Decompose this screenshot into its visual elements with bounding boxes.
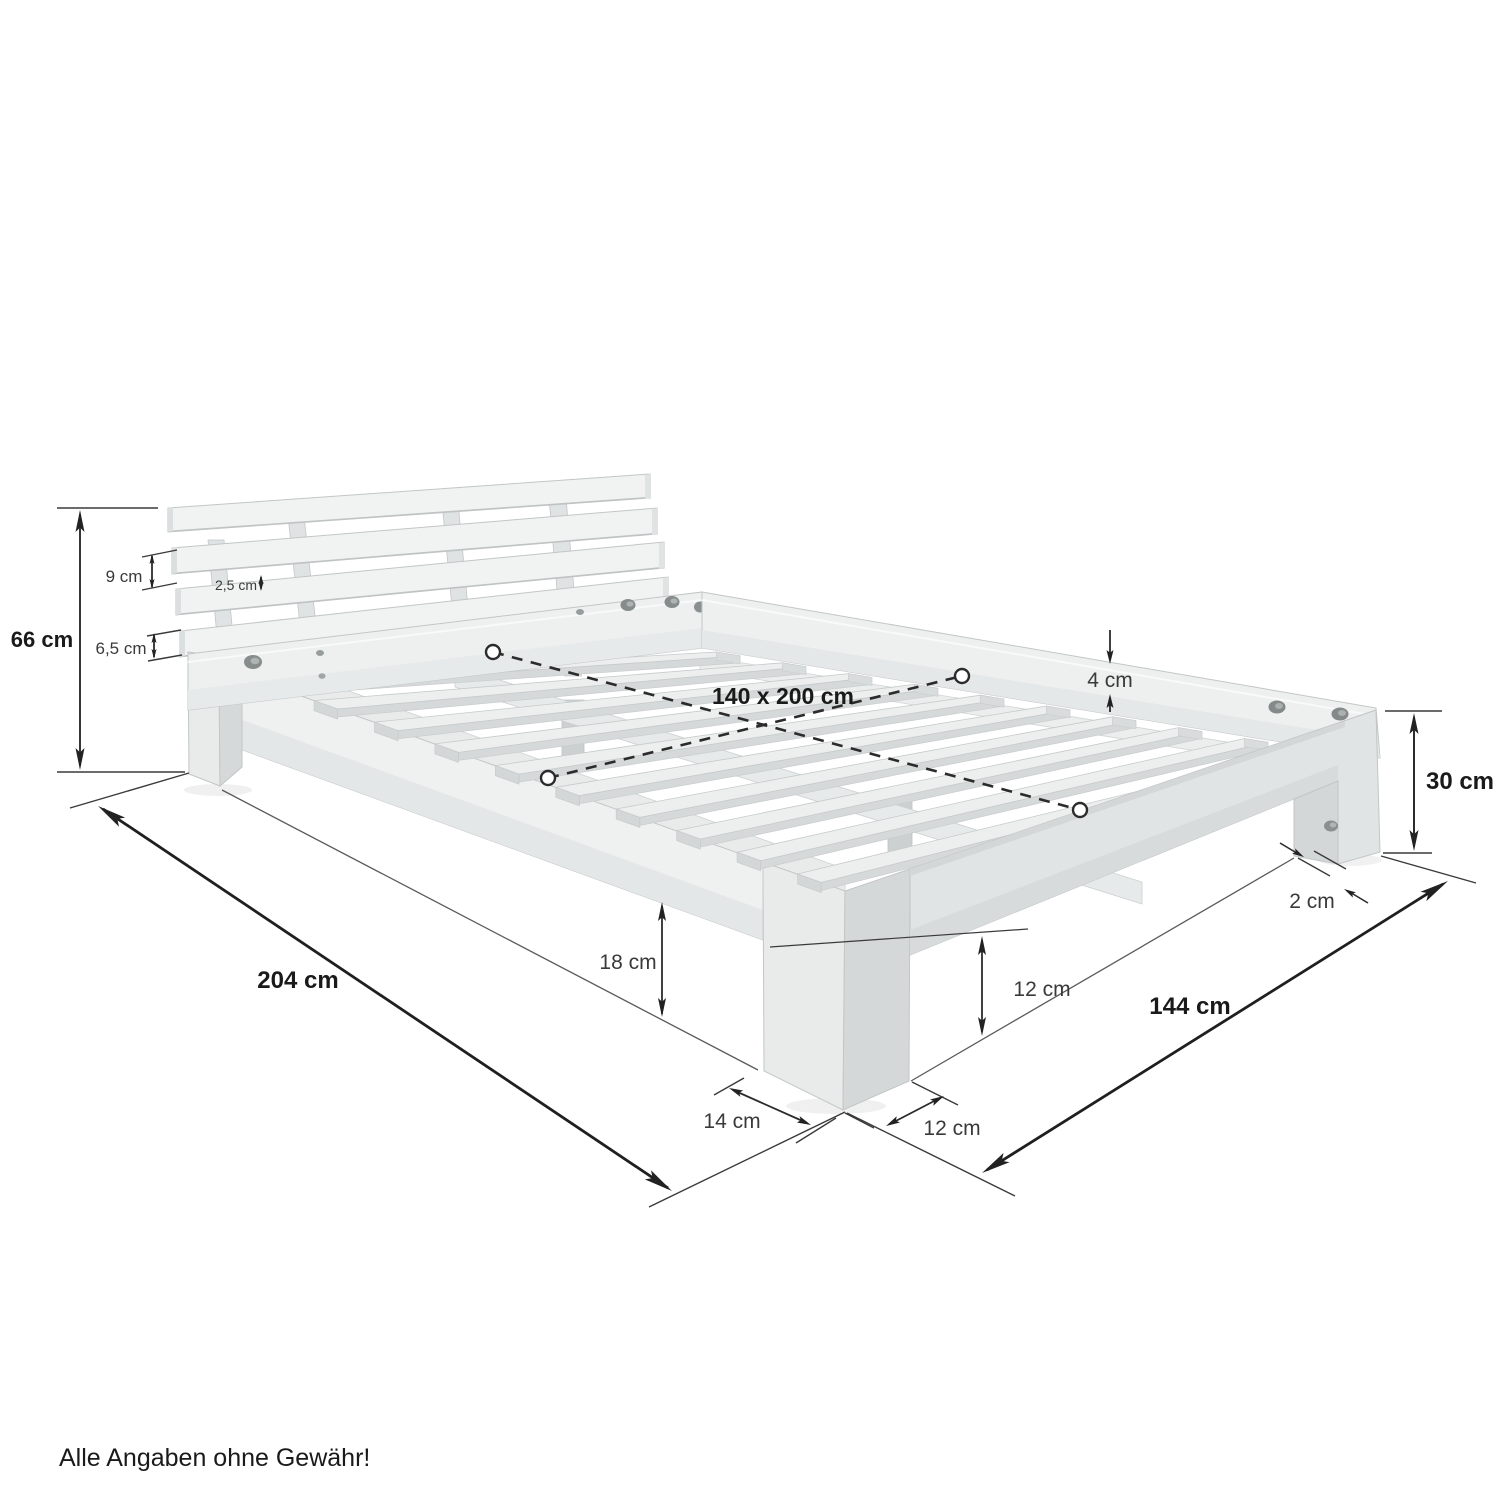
svg-text:4 cm: 4 cm — [1087, 669, 1133, 692]
svg-text:144 cm: 144 cm — [1149, 993, 1230, 1020]
svg-text:2,5 cm: 2,5 cm — [215, 577, 257, 593]
svg-text:12 cm: 12 cm — [923, 1117, 980, 1140]
svg-text:140 x 200 cm: 140 x 200 cm — [712, 683, 854, 709]
svg-text:Alle Angaben ohne Gewähr!: Alle Angaben ohne Gewähr! — [59, 1444, 370, 1472]
svg-text:2 cm: 2 cm — [1289, 890, 1335, 913]
svg-text:30 cm: 30 cm — [1426, 768, 1494, 795]
svg-text:18 cm: 18 cm — [599, 951, 656, 974]
svg-text:66 cm: 66 cm — [11, 627, 73, 652]
svg-text:14 cm: 14 cm — [703, 1110, 760, 1133]
svg-text:12 cm: 12 cm — [1013, 978, 1070, 1001]
svg-text:9 cm: 9 cm — [106, 567, 143, 586]
svg-text:204 cm: 204 cm — [257, 967, 338, 994]
svg-text:6,5 cm: 6,5 cm — [95, 639, 146, 658]
